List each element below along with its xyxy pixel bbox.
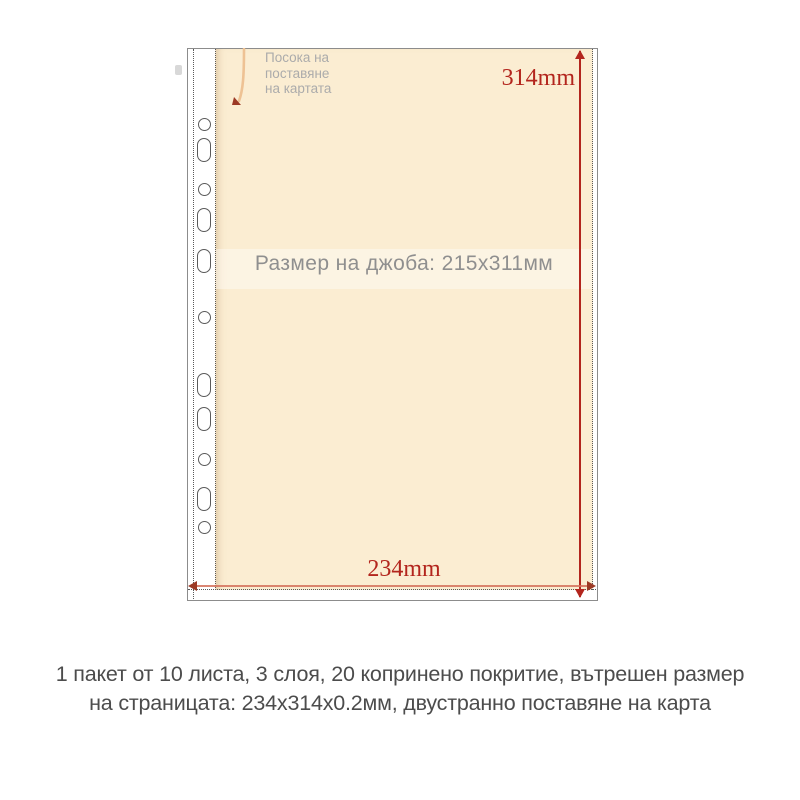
oval-punch-hole (197, 487, 211, 511)
arrow-down-icon (575, 589, 585, 598)
circle-punch-hole (198, 183, 211, 196)
bottom-dashed-seam (188, 589, 596, 590)
width-dimension-line (190, 585, 594, 587)
insertion-direction-line3: на картата (265, 81, 331, 97)
circle-punch-hole (198, 521, 211, 534)
oval-punch-hole (197, 407, 211, 431)
insertion-arrow-icon (230, 48, 250, 110)
pocket-size-label: Размер на джоба: 215x311мм (215, 252, 593, 276)
insertion-direction-label: Посока на поставяне на картата (265, 50, 331, 97)
width-dimension-label: 234mm (215, 556, 593, 583)
caption-line-1: 1 пакет от 10 листа, 3 слоя, 20 копринен… (0, 660, 800, 689)
oval-punch-hole (197, 208, 211, 232)
height-dimension-label: 314mm (502, 65, 575, 92)
circle-punch-hole (198, 453, 211, 466)
left-dashed-seam (193, 49, 194, 599)
sheet-protector-diagram: Посока на поставяне на картата Размер на… (187, 48, 598, 601)
caption-line-2: на страницата: 234x314x0.2мм, двустранно… (0, 689, 800, 718)
oval-punch-hole (197, 138, 211, 162)
binder-tab (175, 65, 182, 75)
arrow-left-icon (188, 581, 197, 591)
arrow-up-icon (575, 50, 585, 59)
circle-punch-hole (198, 118, 211, 131)
height-dimension-line (579, 51, 581, 597)
caption: 1 пакет от 10 листа, 3 слоя, 20 копринен… (0, 660, 800, 718)
insertion-direction-line2: поставяне (265, 66, 331, 82)
pocket-area (215, 49, 593, 590)
insertion-direction-line1: Посока на (265, 50, 331, 66)
product-figure: Посока на поставяне на картата Размер на… (0, 0, 800, 800)
oval-punch-hole (197, 373, 211, 397)
oval-punch-hole (197, 249, 211, 273)
circle-punch-hole (198, 311, 211, 324)
